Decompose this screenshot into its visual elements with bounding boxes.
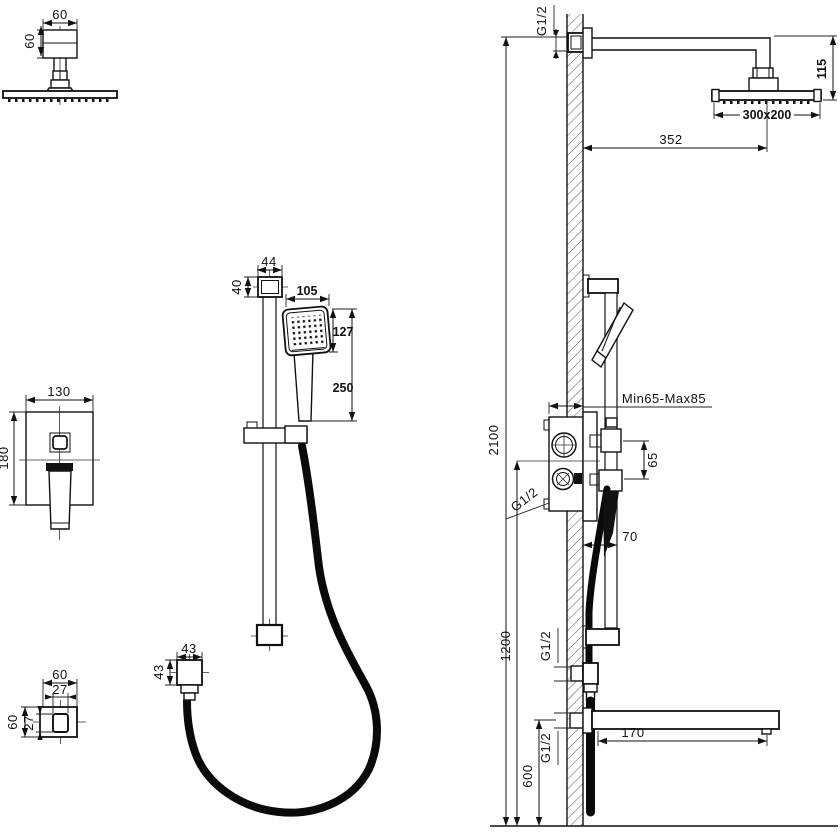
overhead-shower-front-view: 60 60 xyxy=(3,7,117,105)
slide-bar xyxy=(263,297,276,625)
spout-flange xyxy=(583,708,592,733)
mixer-handle xyxy=(49,471,71,529)
dim-mixer-height: 180 xyxy=(0,446,11,469)
concealed-mixer-front-view: 130 180 xyxy=(0,384,100,540)
bar-bottom-bracket-side xyxy=(586,629,619,645)
dim-outlet-inner-width: 27 xyxy=(52,682,67,697)
valve-stop-block xyxy=(574,473,582,484)
dim-valve-height: 1200 xyxy=(498,631,513,662)
handle-pivot xyxy=(46,463,73,471)
handle-clamp xyxy=(285,426,307,443)
valve-escutcheon-side xyxy=(583,412,597,521)
technical-drawing-page: 60 60 130 180 60 27 60 27 xyxy=(0,0,840,832)
dim-outlet-inner-height: 27 xyxy=(21,715,36,730)
diverter-button xyxy=(53,436,67,449)
tub-spout xyxy=(592,711,779,729)
dim-outlet-height: 60 xyxy=(5,714,20,729)
dim-spout-height: 600 xyxy=(520,764,535,787)
hand-shower-head xyxy=(282,306,331,356)
dim-total-length: 250 xyxy=(333,381,354,395)
dim-head-width: 105 xyxy=(297,284,318,298)
dim-outlet-width: 60 xyxy=(52,667,67,682)
head-connector xyxy=(51,80,69,88)
dim-bracket-width: 44 xyxy=(261,254,276,269)
head-mount xyxy=(749,78,778,91)
bar-top-bracket-side xyxy=(588,279,618,293)
mixer-handle-base-side xyxy=(599,470,622,491)
label-spout-thread: G1/2 xyxy=(538,733,553,763)
outlet-stub-side xyxy=(571,666,583,681)
arm-wall-flange xyxy=(583,28,592,58)
dim-head-length: 127 xyxy=(333,325,354,339)
shower-installation-diagram: 60 60 130 180 60 27 60 27 xyxy=(0,0,840,832)
label-outlet-thread: G1/2 xyxy=(538,631,553,661)
label-valve-thread: G1/2 xyxy=(508,484,541,514)
rain-shower-head xyxy=(712,91,821,100)
dim-diverter-spacing: 65 xyxy=(645,452,660,467)
shower-arm xyxy=(592,38,770,68)
shower-head-plate xyxy=(3,91,117,98)
arm-nut xyxy=(753,68,773,78)
dim-bracket-depth: 40 xyxy=(229,279,244,294)
slider-tab xyxy=(247,422,257,428)
hand-shower-handle xyxy=(294,350,313,421)
dim-spout-reach: 170 xyxy=(621,725,644,740)
spout-stub-side xyxy=(570,713,583,728)
installation-side-view: 2100 G1/2 115 300x200 352 xyxy=(486,5,838,826)
wall-outlet-side xyxy=(583,663,598,684)
wall-outlet-front-view: 60 27 60 27 xyxy=(5,667,86,744)
hose-connector xyxy=(177,660,202,685)
slider-side xyxy=(606,418,617,427)
hose-connector-nut xyxy=(181,685,198,693)
valve-body xyxy=(549,417,583,511)
hose-nut-collar xyxy=(184,693,195,700)
dim-connector-width: 43 xyxy=(181,641,196,656)
dim-total-height: 2100 xyxy=(486,425,501,456)
diverter-knob-side xyxy=(601,429,621,452)
dim-connector-height: 43 xyxy=(151,664,166,679)
ceiling-mount-block xyxy=(43,30,77,58)
spray-face xyxy=(289,315,324,348)
dim-arm-reach: 352 xyxy=(659,132,682,147)
outlet-nut xyxy=(584,684,597,692)
dim-overhead-depth: 60 xyxy=(22,33,37,48)
dim-valve-depth-range: Min65-Max85 xyxy=(622,391,706,406)
dim-overhead-width: 60 xyxy=(52,7,67,22)
hand-shower-rail-front-view: 44 40 105 127 250 43 43 xyxy=(151,254,377,813)
label-inlet-thread: G1/2 xyxy=(534,6,549,36)
dim-bar-offset: 70 xyxy=(622,529,637,544)
dim-mixer-width: 130 xyxy=(47,384,70,399)
spout-outlet xyxy=(762,729,771,734)
bar-end-cap xyxy=(257,625,282,645)
outlet-connection xyxy=(53,714,68,732)
dim-head-drop: 115 xyxy=(815,59,829,79)
